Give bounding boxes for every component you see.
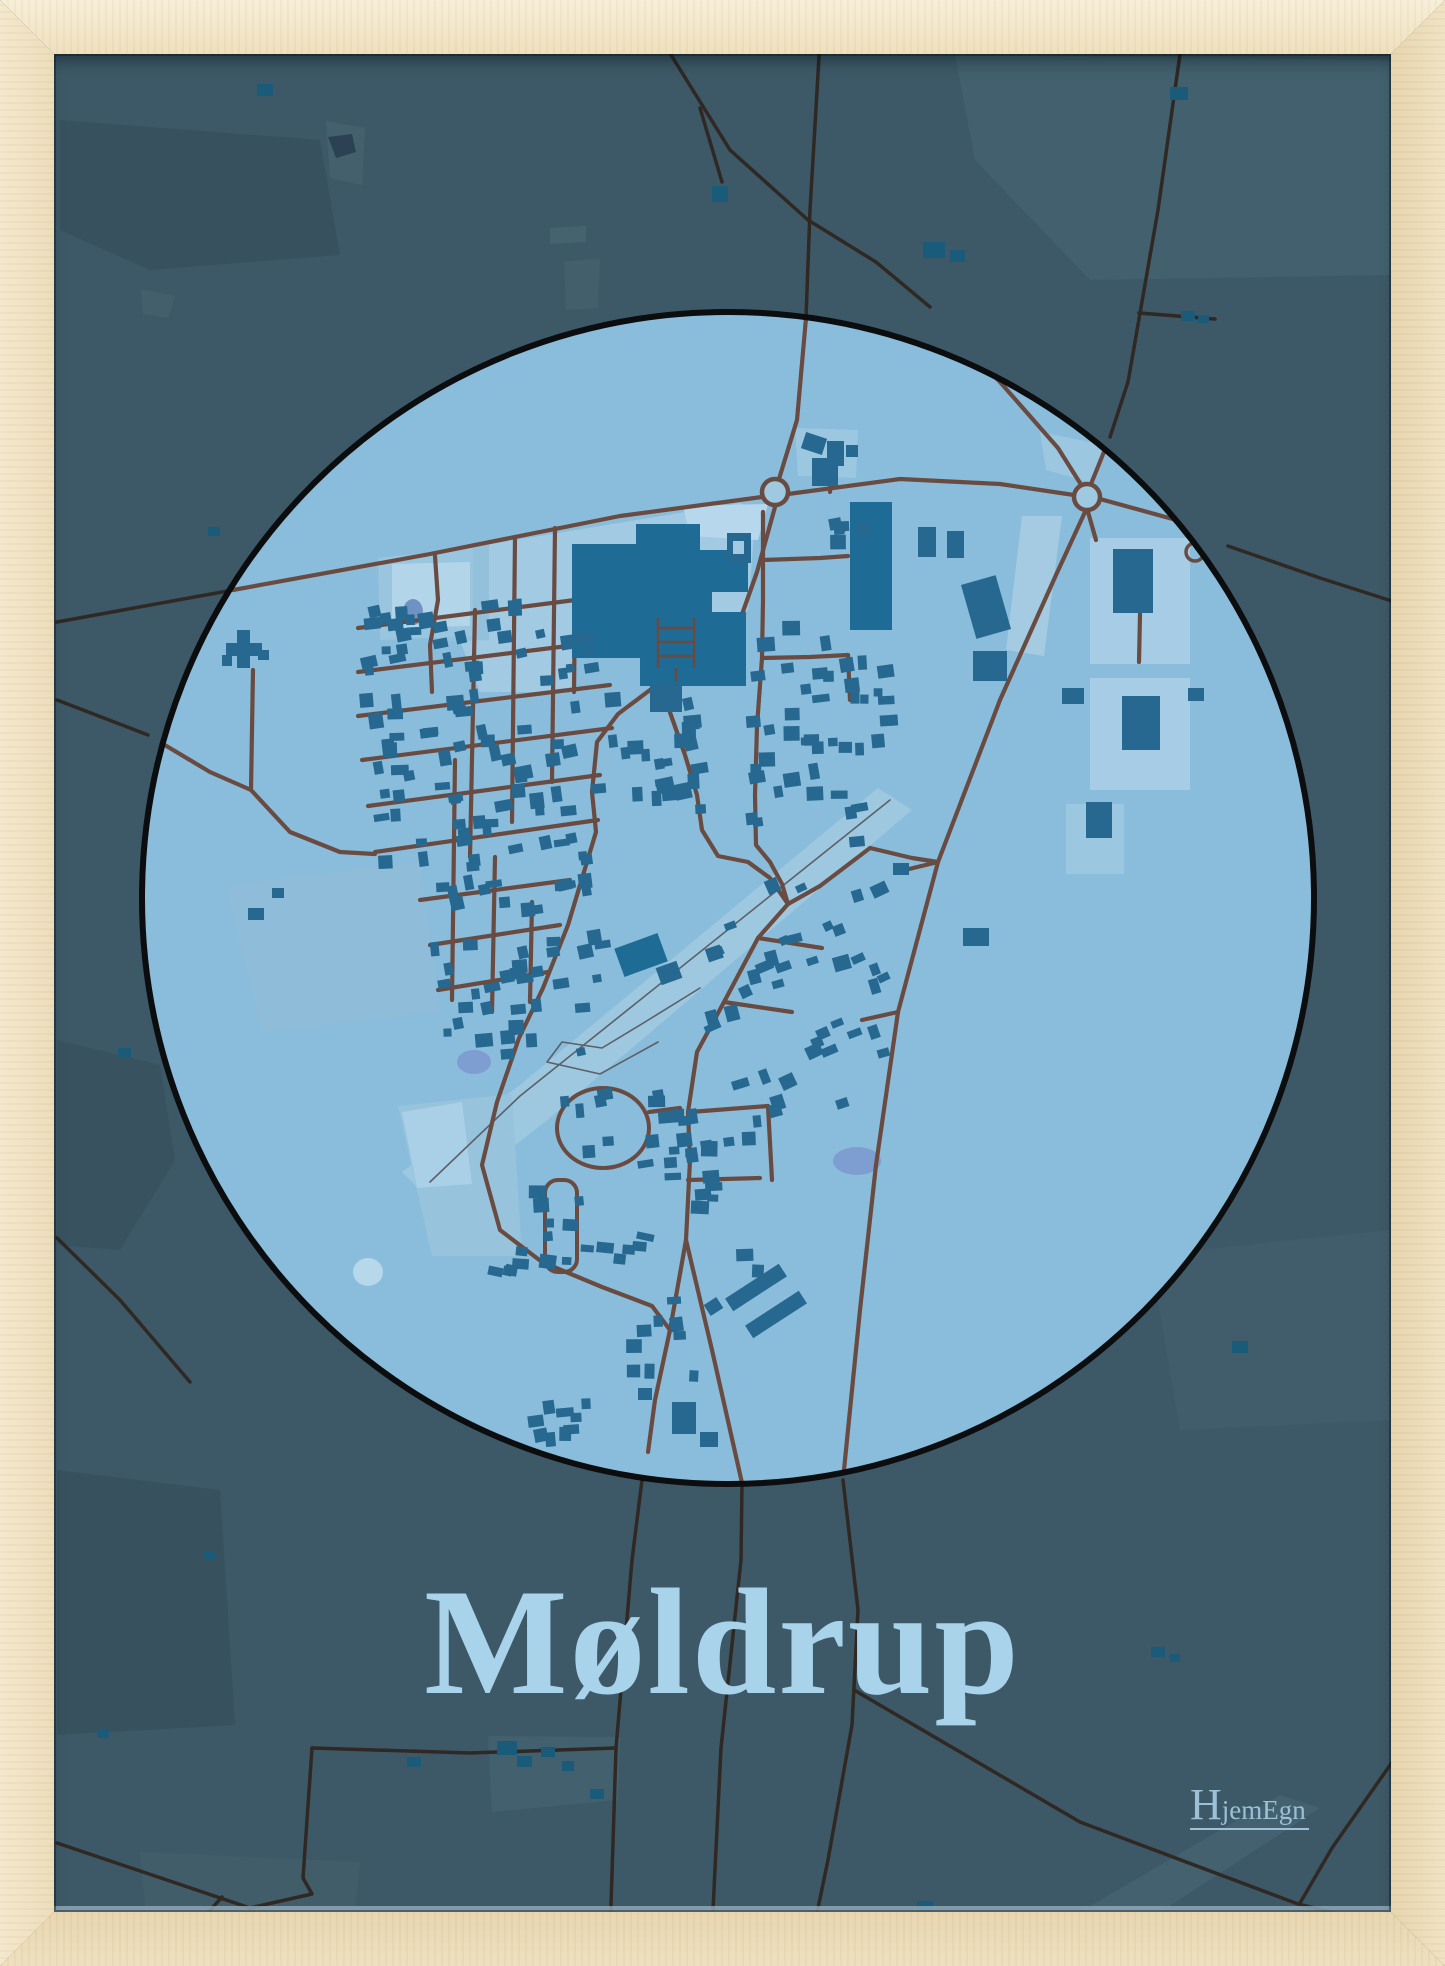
frame-top	[0, 0, 1445, 54]
frame-right	[1391, 0, 1445, 1966]
poster-bottom-edge	[54, 1906, 1391, 1912]
brand-logo: HjemEgn	[1190, 1783, 1309, 1830]
logo-text: jemEgn	[1222, 1795, 1306, 1825]
frame-bottom	[0, 1912, 1445, 1966]
poster-title: Møldrup	[54, 1566, 1391, 1718]
poster: Møldrup HjemEgn	[54, 54, 1391, 1912]
logo-initial: H	[1190, 1780, 1222, 1829]
frame-left	[0, 0, 54, 1966]
framed-poster: Møldrup HjemEgn	[0, 0, 1445, 1966]
